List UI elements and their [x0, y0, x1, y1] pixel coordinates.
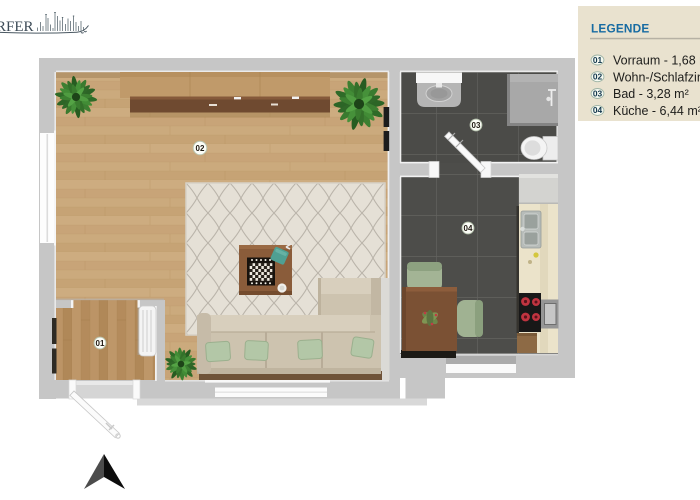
- svg-text:03: 03: [593, 88, 603, 98]
- svg-text:02: 02: [593, 72, 603, 82]
- svg-text:Vorraum - 1,68 m²: Vorraum - 1,68 m²: [613, 54, 700, 68]
- svg-text:Bad - 3,28 m²: Bad - 3,28 m²: [613, 87, 689, 101]
- svg-text:01: 01: [593, 55, 603, 65]
- svg-text:Küche - 6,44 m²: Küche - 6,44 m²: [613, 104, 700, 118]
- svg-text:01: 01: [96, 339, 105, 348]
- svg-text:04: 04: [464, 224, 473, 233]
- svg-text:LEGENDE: LEGENDE: [591, 22, 649, 36]
- svg-text:04: 04: [593, 105, 603, 115]
- svg-text:03: 03: [472, 121, 481, 130]
- svg-text:Wohn-/Schlafzimme: Wohn-/Schlafzimme: [613, 70, 700, 84]
- svg-text:02: 02: [196, 144, 205, 153]
